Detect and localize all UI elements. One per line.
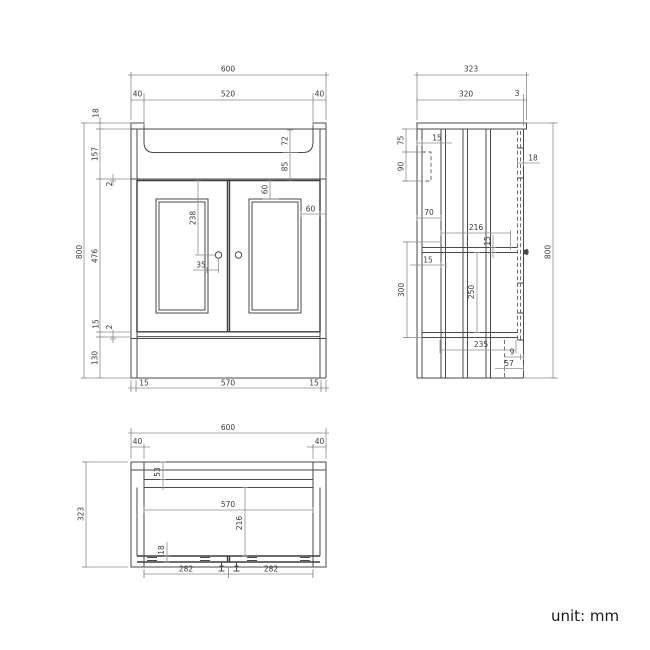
dim-side-rail-height: 90 [397, 162, 406, 172]
dim-plan-inner-width: 570 [221, 500, 236, 509]
dim-side-interior-depth: 216 [469, 223, 484, 232]
dim-front-basin-depth: 72 [281, 136, 290, 146]
dim-front-basin-width: 520 [221, 90, 236, 99]
plan-left-extensions [82, 462, 128, 567]
front-cabinet-sides [131, 129, 326, 378]
dim-front-frame-side-inset: 60 [306, 205, 316, 214]
dim-front-top-gap: 2 [105, 181, 114, 186]
dim-front-overall-height: 800 [75, 245, 84, 260]
unit-label: unit: mm [551, 607, 619, 625]
vanity-dimension-drawing: 600 40 520 40 800 18 157 2 476 15 2 130 … [0, 0, 650, 650]
dim-side-plinth-recess: 57 [504, 359, 514, 368]
dim-side-plinth-lip: 9 [510, 348, 515, 357]
front-handle-left [215, 252, 221, 258]
front-gap-marks [110, 174, 116, 343]
dim-front-plinth-height: 130 [91, 351, 100, 366]
dim-plan-left-corner: 40 [133, 437, 143, 446]
dim-side-door-thickness: 18 [528, 154, 538, 163]
dim-side-shelf-thickness: 15 [483, 236, 492, 246]
dim-front-bottom-gap: 2 [105, 324, 114, 329]
dim-front-right-upstand: 40 [315, 90, 325, 99]
side-shelf-lines [422, 248, 518, 253]
front-bottom-rail-lines [131, 337, 326, 339]
front-top-extensions [131, 72, 326, 126]
dim-side-overall-depth: 323 [464, 65, 479, 74]
dim-side-rail-top-offset: 75 [397, 136, 406, 146]
dim-front-overall-width: 600 [221, 65, 236, 74]
dim-side-front-overhang: 3 [515, 89, 520, 98]
front-upstand-right [313, 123, 326, 129]
dim-side-body-depth: 320 [459, 90, 474, 99]
dim-side-bottom-depth: 235 [474, 340, 489, 349]
side-top-extensions [417, 72, 527, 126]
dim-side-overall-height: 800 [544, 245, 553, 260]
dim-front-bottom-opening: 570 [221, 379, 236, 388]
side-door-hidden-lines [518, 131, 521, 340]
dim-front-bottom-inset-right: 15 [309, 379, 319, 388]
front-upstand-left [131, 123, 144, 129]
front-left-door-frame [156, 199, 208, 313]
side-countertop-band [417, 123, 527, 129]
side-view: 323 320 3 75 90 15 70 15 216 15 250 300 … [397, 65, 559, 379]
dim-front-top-lip: 18 [92, 108, 101, 118]
dim-front-under-basin: 85 [281, 162, 290, 172]
front-right-door-frame [249, 199, 301, 313]
side-hanging-rail [422, 152, 431, 181]
dim-plan-interior-depth: 216 [235, 516, 244, 531]
plan-dim-282-line [144, 571, 313, 577]
front-left-extensions [81, 123, 131, 378]
dim-front-top-section: 157 [91, 147, 100, 162]
dim-plan-left-door-width: 282 [179, 565, 194, 574]
dim-side-panel-thickness: 15 [423, 256, 433, 265]
dim-plan-right-corner: 40 [315, 437, 325, 446]
dim-plan-overall-depth: 323 [77, 507, 86, 522]
dim-front-bottom-inset-left: 15 [139, 379, 149, 388]
dim-side-back-clearance: 70 [424, 208, 434, 217]
plan-back-rails [144, 470, 313, 488]
dim-front-bottom-rail: 15 [92, 319, 101, 329]
dim-plan-right-door-width: 282 [264, 565, 279, 574]
dim-side-back-panel-thickness: 15 [432, 134, 442, 143]
side-knob [524, 249, 529, 255]
front-doors-outline [137, 181, 320, 332]
dim-side-under-shelf-height: 250 [467, 285, 476, 300]
side-bottom-panel-lines [422, 333, 518, 338]
dim-plan-back-rail-depth: 53 [153, 467, 162, 477]
dim-front-frame-top-inset: 60 [261, 185, 270, 195]
plan-dim-40-lines [131, 444, 326, 450]
dim-front-left-upstand: 40 [133, 90, 143, 99]
plan-view: 600 40 40 323 53 570 216 18 282 282 [77, 423, 330, 578]
dim-plan-overall-width: 600 [221, 423, 236, 432]
front-handle-right [235, 252, 241, 258]
dim-front-handle-drop: 238 [189, 211, 198, 226]
plan-door-band [137, 556, 320, 562]
plan-hinge-marks [147, 558, 310, 561]
dim-front-door-height: 476 [91, 249, 100, 264]
technical-drawing-page: 600 40 520 40 800 18 157 2 476 15 2 130 … [0, 0, 650, 650]
dim-front-handle-inset: 35 [196, 261, 206, 270]
dim-side-shelf-zone-height: 300 [397, 283, 406, 298]
front-view: 600 40 520 40 800 18 157 2 476 15 2 130 … [75, 65, 329, 393]
dim-plan-door-thickness: 18 [157, 545, 166, 555]
